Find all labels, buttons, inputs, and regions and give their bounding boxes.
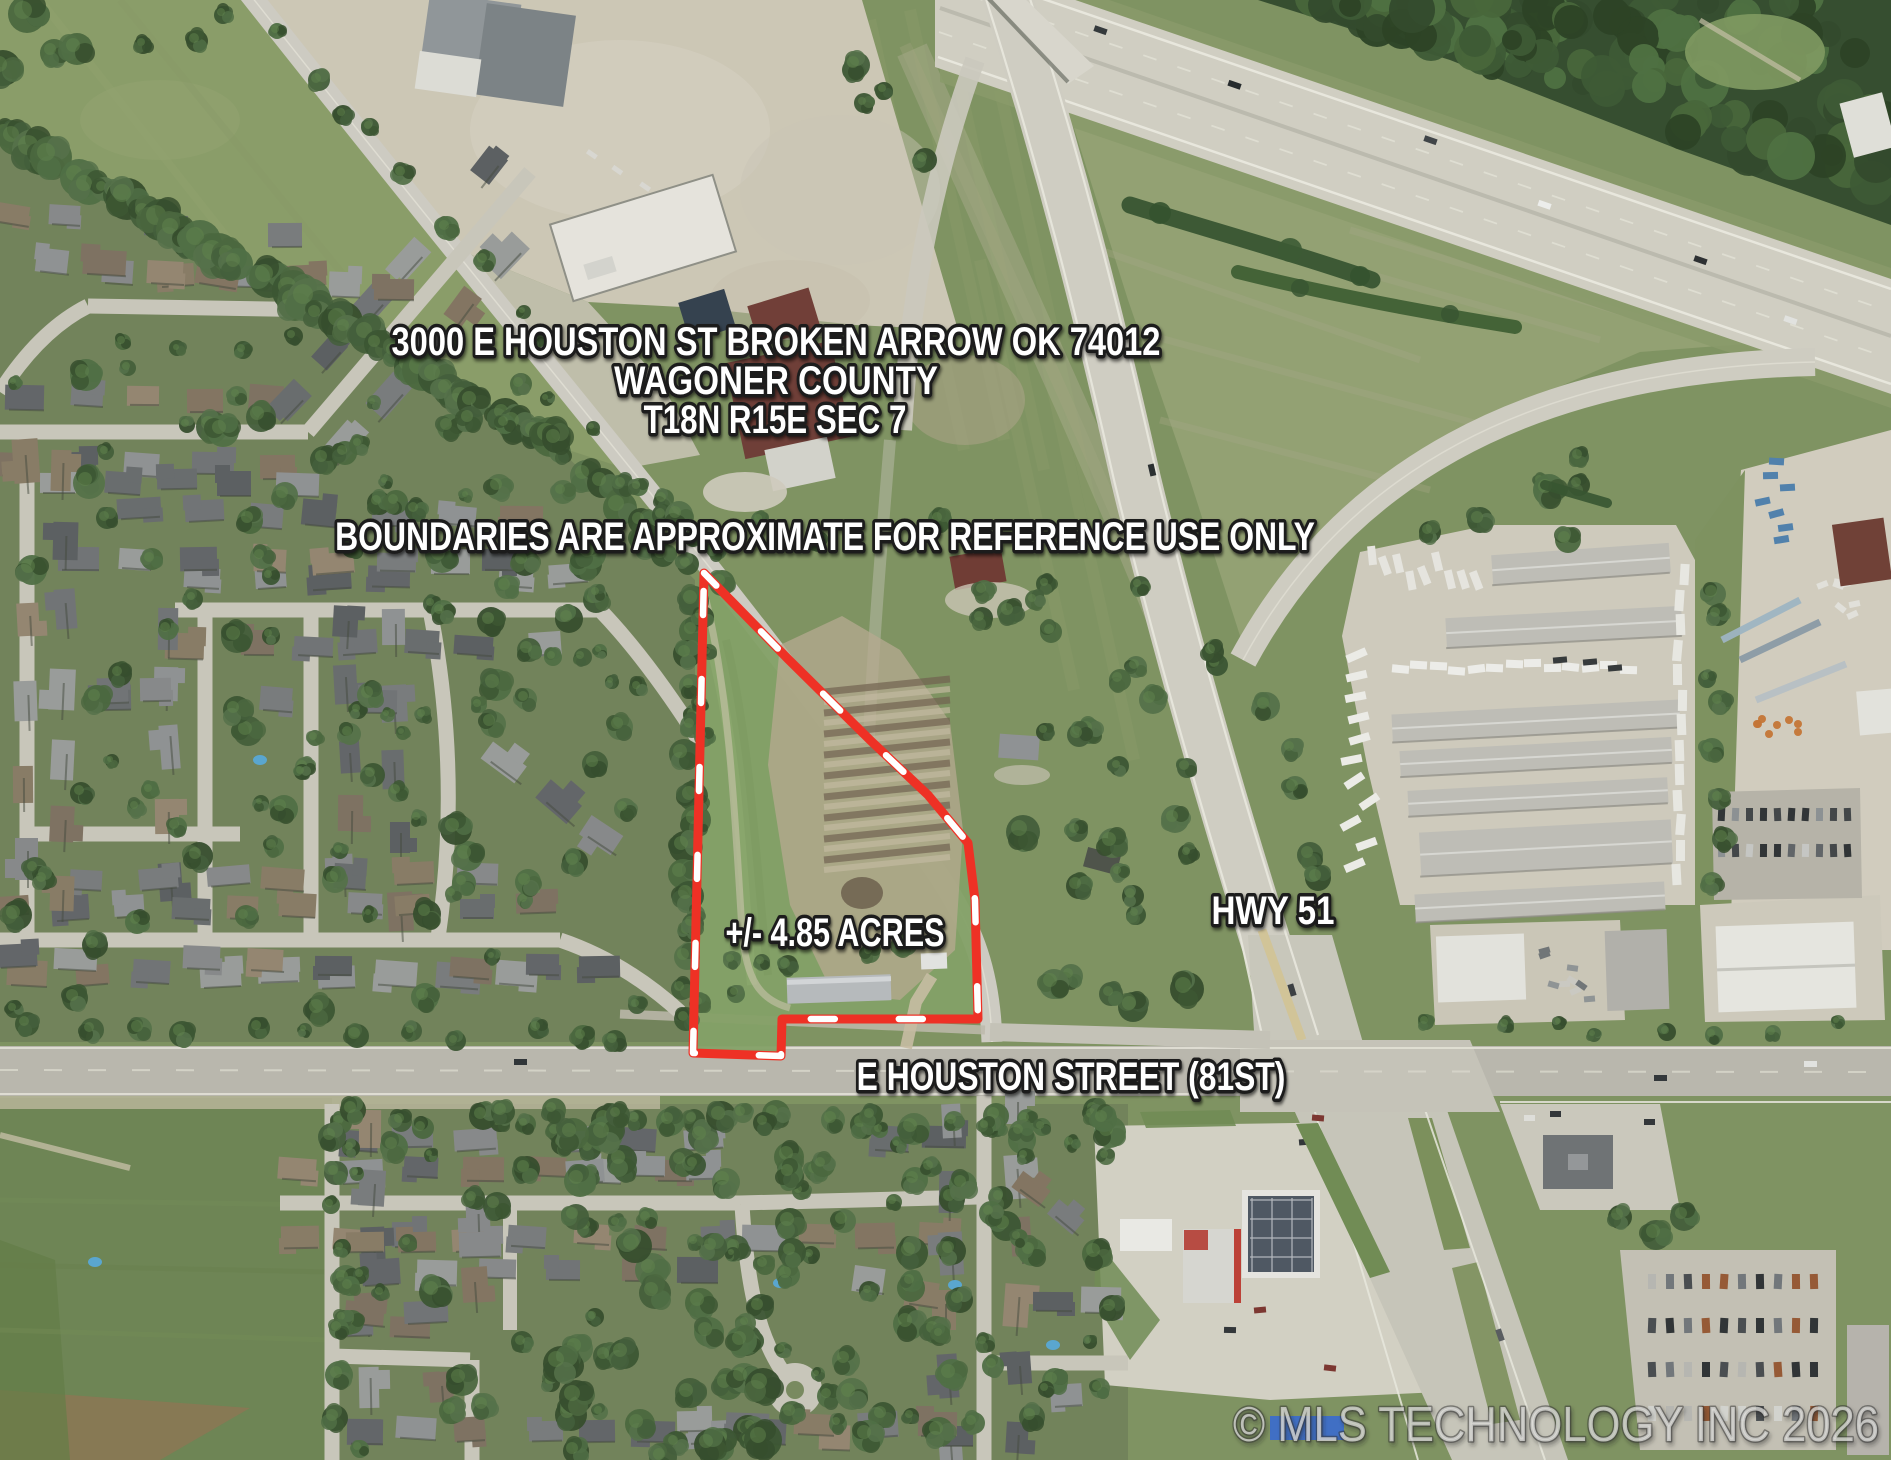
svg-text:© MLS TECHNOLOGY INC 2026: © MLS TECHNOLOGY INC 2026: [1233, 1397, 1879, 1452]
svg-text:T18N R15E SEC 7: T18N R15E SEC 7: [644, 396, 907, 442]
svg-text:E HOUSTON STREET (81ST): E HOUSTON STREET (81ST): [857, 1053, 1286, 1098]
svg-text:HWY 51: HWY 51: [1212, 888, 1335, 933]
svg-text:BOUNDARIES ARE APPROXIMATE FOR: BOUNDARIES ARE APPROXIMATE FOR REFERENCE…: [335, 514, 1315, 559]
svg-text:3000 E HOUSTON ST BROKEN ARROW: 3000 E HOUSTON ST BROKEN ARROW OK 74012: [392, 319, 1161, 364]
svg-text:+/- 4.85 ACRES: +/- 4.85 ACRES: [725, 910, 944, 955]
